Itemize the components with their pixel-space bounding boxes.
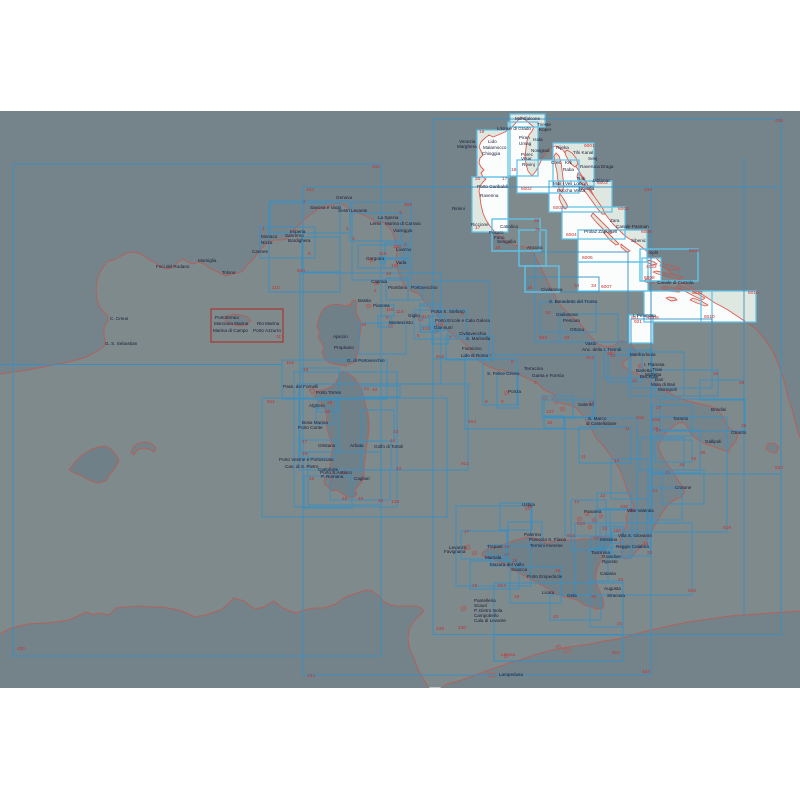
svg-text:49: 49 [303, 367, 309, 373]
svg-text:8: 8 [511, 359, 514, 365]
svg-text:434: 434 [306, 187, 314, 193]
svg-text:Portovecchio: Portovecchio [411, 285, 438, 290]
svg-text:40: 40 [361, 322, 367, 328]
svg-text:Crotone: Crotone [675, 485, 692, 490]
svg-text:Raveruca Draga: Raveruca Draga [580, 164, 614, 169]
svg-text:Montecristo: Montecristo [389, 320, 413, 325]
svg-text:Portoferraio: Portoferraio [215, 315, 239, 320]
svg-text:432: 432 [372, 164, 380, 170]
svg-text:Catania: Catania [600, 571, 616, 576]
svg-text:9: 9 [534, 380, 537, 386]
svg-text:6022: 6022 [692, 290, 703, 296]
svg-text:Messina: Messina [600, 537, 618, 542]
svg-text:Porto Vesme e Portoscuso: Porto Vesme e Portoscuso [279, 457, 334, 462]
svg-text:48: 48 [327, 400, 333, 406]
svg-text:12: 12 [610, 353, 616, 359]
svg-text:915: 915 [636, 415, 644, 421]
svg-text:910: 910 [297, 268, 305, 274]
svg-text:35: 35 [535, 227, 541, 233]
svg-text:Koper: Koper [539, 127, 552, 132]
svg-text:7: 7 [449, 335, 452, 341]
svg-text:Marghera: Marghera [457, 144, 477, 149]
svg-text:Marciana Marina: Marciana Marina [214, 321, 249, 326]
svg-text:46: 46 [309, 476, 315, 482]
svg-text:Otranto: Otranto [731, 430, 747, 435]
svg-text:19: 19 [511, 167, 517, 173]
svg-text:Oristano: Oristano [318, 443, 336, 448]
svg-text:Pesaro: Pesaro [489, 230, 504, 235]
svg-text:Lido di Roma: Lido di Roma [461, 353, 489, 358]
svg-text:43: 43 [396, 466, 402, 472]
svg-text:Capraia: Capraia [371, 279, 388, 284]
svg-text:110: 110 [272, 285, 280, 291]
svg-text:Giglio: Giglio [408, 313, 420, 318]
svg-text:915: 915 [567, 533, 575, 539]
svg-text:3: 3 [399, 210, 402, 216]
svg-text:Sciacca: Sciacca [511, 567, 528, 572]
svg-text:Porto Ercole e Cala Galera: Porto Ercole e Cala Galera [435, 318, 490, 323]
svg-text:43: 43 [393, 429, 399, 435]
svg-text:7: 7 [489, 353, 492, 359]
svg-text:6004: 6004 [566, 232, 577, 238]
svg-text:S. Marinella: S. Marinella [466, 336, 491, 341]
svg-text:Vada: Vada [396, 260, 407, 265]
svg-text:11: 11 [625, 426, 630, 432]
svg-text:I. Pelagosa: I. Pelagosa [633, 313, 656, 318]
svg-text:17: 17 [464, 529, 470, 535]
svg-text:Rijeka: Rijeka [556, 145, 569, 150]
svg-text:Salerno: Salerno [578, 402, 594, 407]
svg-text:20: 20 [553, 614, 559, 620]
svg-text:Porto Torres: Porto Torres [316, 390, 342, 395]
svg-text:17: 17 [504, 552, 510, 558]
svg-text:6005: 6005 [582, 255, 593, 261]
svg-text:Monaco: Monaco [261, 234, 278, 239]
svg-text:Ancona: Ancona [527, 245, 543, 250]
svg-text:Marina di Campo: Marina di Campo [213, 328, 248, 333]
svg-text:Termini Imerese: Termini Imerese [530, 543, 563, 548]
svg-text:di Castellabate: di Castellabate [586, 421, 617, 426]
svg-text:909: 909 [404, 202, 412, 208]
svg-text:Montfalcone: Montfalcone [515, 116, 540, 121]
svg-text:6001: 6001 [584, 143, 595, 149]
svg-text:S. Felice Circeo: S. Felice Circeo [487, 371, 520, 376]
svg-text:40: 40 [386, 271, 392, 277]
svg-text:Rovinj: Rovinj [522, 162, 535, 167]
svg-text:19: 19 [514, 594, 520, 600]
svg-text:Genova: Genova [336, 195, 353, 200]
svg-text:28: 28 [700, 450, 706, 456]
svg-text:Malamocco: Malamocco [483, 145, 507, 150]
svg-text:Porto Garibaldi: Porto Garibaldi [477, 184, 508, 189]
svg-text:33: 33 [564, 335, 570, 341]
svg-text:6010: 6010 [748, 290, 759, 296]
svg-text:Siracusa: Siracusa [607, 593, 625, 598]
svg-text:Lido: Lido [488, 139, 497, 144]
svg-text:Ajaccio: Ajaccio [333, 334, 348, 339]
svg-text:Trapani: Trapani [487, 544, 502, 549]
svg-text:Prolaz Zapuntell: Prolaz Zapuntell [584, 229, 617, 234]
svg-text:Vrsar: Vrsar [521, 156, 532, 161]
svg-text:6010: 6010 [704, 314, 715, 320]
svg-text:Mazara del Vallo: Mazara del Vallo [490, 562, 524, 567]
svg-text:Fano: Fano [494, 235, 505, 240]
svg-text:21: 21 [665, 470, 671, 476]
svg-text:6002: 6002 [521, 186, 532, 192]
svg-text:912: 912 [461, 461, 469, 467]
svg-text:919: 919 [723, 525, 731, 531]
svg-text:Zara: Zara [610, 218, 620, 223]
svg-text:47: 47 [302, 439, 308, 445]
svg-text:Terracina: Terracina [524, 366, 543, 371]
svg-text:Tihi Kanal: Tihi Kanal [573, 150, 593, 155]
svg-text:Savona e Vado: Savona e Vado [310, 205, 342, 210]
svg-text:Split: Split [649, 250, 659, 255]
svg-text:Gallipoli: Gallipoli [705, 439, 721, 444]
svg-text:Ustica: Ustica [522, 502, 535, 507]
svg-text:6004: 6004 [618, 206, 629, 212]
svg-text:Litorale di Grado: Litorale di Grado [497, 126, 531, 131]
svg-text:Giannutri: Giannutri [434, 325, 453, 330]
svg-text:436: 436 [775, 118, 783, 124]
svg-text:Sestri Levante: Sestri Levante [338, 208, 368, 213]
svg-text:40: 40 [325, 409, 331, 415]
svg-text:Isola: Isola [533, 137, 543, 142]
svg-text:23: 23 [602, 526, 608, 532]
svg-text:127: 127 [546, 409, 554, 415]
svg-text:Cattolica: Cattolica [500, 224, 518, 229]
svg-text:920: 920 [775, 465, 783, 471]
svg-text:14: 14 [574, 499, 580, 505]
svg-text:20: 20 [475, 176, 481, 182]
svg-text:230: 230 [458, 625, 466, 631]
svg-text:G. di Portovecchio: G. di Portovecchio [347, 358, 385, 363]
svg-text:Vibo Valentia: Vibo Valentia [627, 508, 654, 513]
svg-text:911: 911 [267, 399, 275, 405]
svg-text:18: 18 [479, 129, 485, 135]
svg-text:1: 1 [262, 226, 265, 232]
svg-text:S. Benedetto del Tronto: S. Benedetto del Tronto [549, 299, 598, 304]
svg-text:Linosa: Linosa [501, 652, 515, 658]
svg-text:Cala di Levante: Cala di Levante [474, 618, 506, 623]
svg-text:118: 118 [396, 309, 404, 315]
svg-text:18: 18 [472, 583, 478, 589]
svg-text:6005: 6005 [689, 248, 700, 254]
svg-text:913: 913 [436, 354, 444, 360]
svg-text:Anc. della I. Tremiti: Anc. della I. Tremiti [582, 347, 621, 352]
svg-text:917: 917 [498, 583, 506, 589]
svg-text:Bordighera: Bordighera [288, 238, 311, 243]
svg-text:8: 8 [485, 399, 488, 405]
svg-text:Nizza: Nizza [261, 240, 273, 245]
svg-text:Arbata: Arbata [350, 443, 364, 448]
svg-text:Canale di Curzola: Canale di Curzola [657, 280, 694, 285]
svg-text:36: 36 [495, 245, 501, 251]
svg-text:Licata: Licata [542, 590, 555, 595]
svg-text:Porta S. Stefano: Porta S. Stefano [431, 309, 465, 314]
svg-text:Gela: Gela [567, 593, 577, 598]
svg-text:Cagliari: Cagliari [354, 476, 370, 481]
svg-text:P. Romana: P. Romana [321, 474, 344, 479]
svg-text:2: 2 [346, 226, 349, 232]
svg-text:Fiumicino: Fiumicino [462, 346, 482, 351]
svg-text:33: 33 [618, 577, 624, 583]
svg-text:6006: 6006 [641, 229, 652, 235]
svg-text:17: 17 [502, 176, 508, 182]
svg-text:Senj: Senj [588, 156, 597, 161]
svg-text:Pomezia S. Flavia: Pomezia S. Flavia [529, 537, 566, 542]
svg-text:Golfo di Tortoli: Golfo di Tortoli [374, 444, 403, 449]
svg-text:9: 9 [501, 399, 504, 405]
svg-text:2: 2 [303, 199, 306, 205]
svg-text:919: 919 [652, 417, 660, 423]
svg-text:Riposto: Riposto [602, 559, 618, 564]
svg-text:Favignana: Favignana [444, 549, 466, 554]
svg-text:13: 13 [600, 493, 606, 499]
svg-text:Umag: Umag [519, 141, 532, 146]
svg-text:Ortona: Ortona [570, 327, 584, 332]
svg-text:Monopoli: Monopoli [658, 387, 677, 392]
svg-text:36: 36 [534, 218, 540, 224]
svg-text:14: 14 [652, 488, 658, 494]
svg-text:4: 4 [374, 288, 377, 294]
svg-text:Propriano: Propriano [334, 345, 354, 350]
svg-text:11: 11 [581, 454, 586, 460]
svg-text:Piran: Piran [519, 135, 530, 140]
svg-text:Reggio Calabria: Reggio Calabria [616, 544, 649, 549]
svg-text:21: 21 [617, 621, 623, 627]
svg-text:434: 434 [642, 669, 650, 675]
svg-text:Brindisi: Brindisi [711, 407, 726, 412]
svg-text:Gorgona: Gorgona [366, 256, 384, 261]
svg-text:Livorno: Livorno [396, 247, 412, 252]
svg-text:22: 22 [594, 536, 600, 542]
svg-text:Pescara: Pescara [563, 318, 580, 323]
svg-text:Jablanac: Jablanac [592, 178, 611, 183]
svg-text:Panarea: Panarea [584, 509, 602, 514]
svg-text:Cres: Cres [551, 160, 561, 165]
svg-text:6003: 6003 [553, 205, 564, 211]
svg-text:Sibenic: Sibenic [631, 238, 647, 243]
svg-text:918: 918 [688, 588, 696, 594]
svg-text:6: 6 [417, 333, 420, 339]
svg-text:Rimini: Rimini [452, 206, 465, 211]
svg-text:23: 23 [647, 550, 653, 556]
svg-text:29: 29 [739, 380, 745, 386]
svg-text:Ponza: Ponza [508, 389, 521, 394]
svg-text:Chioggia: Chioggia [482, 151, 501, 156]
svg-text:46: 46 [358, 496, 364, 502]
svg-text:28: 28 [741, 423, 747, 429]
svg-text:La Spezia: La Spezia [378, 215, 399, 220]
svg-text:Foci del Rodano: Foci del Rodano [156, 264, 190, 269]
svg-text:Pass. dei Fornelli: Pass. dei Fornelli [283, 384, 318, 389]
svg-text:20: 20 [591, 594, 597, 600]
svg-text:Krk: Krk [565, 160, 573, 165]
svg-text:Civitanova: Civitanova [541, 287, 563, 292]
svg-text:5: 5 [308, 251, 311, 257]
svg-text:129: 129 [391, 499, 399, 505]
svg-text:914: 914 [586, 355, 594, 361]
svg-text:I. Pianosa: I. Pianosa [644, 362, 665, 367]
svg-text:Canale Pasman: Canale Pasman [616, 224, 649, 229]
svg-text:Novigrad: Novigrad [531, 148, 550, 153]
svg-text:27: 27 [656, 405, 662, 411]
svg-text:917: 917 [612, 650, 620, 656]
svg-text:Giulianova: Giulianova [556, 312, 578, 317]
svg-text:432: 432 [17, 646, 25, 652]
svg-text:3: 3 [352, 236, 355, 242]
svg-text:G. S. Sebastian: G. S. Sebastian [105, 341, 138, 346]
svg-text:42: 42 [372, 387, 378, 393]
svg-text:Porto Empedocle: Porto Empedocle [527, 574, 563, 579]
svg-text:434: 434 [644, 187, 652, 193]
svg-text:Alghero: Alghero [309, 403, 325, 408]
svg-text:Viareggio: Viareggio [393, 228, 413, 233]
svg-text:25: 25 [691, 456, 697, 462]
svg-text:Taranto: Taranto [673, 416, 689, 421]
svg-text:Augusta: Augusta [604, 586, 621, 591]
svg-text:Porto Azzurro: Porto Azzurro [253, 328, 281, 333]
svg-text:16: 16 [679, 462, 685, 468]
svg-text:Riccione: Riccione [471, 222, 489, 227]
svg-text:435: 435 [436, 626, 444, 632]
svg-text:30: 30 [713, 371, 719, 377]
svg-text:117: 117 [276, 334, 284, 340]
svg-text:Marina di Carrara: Marina di Carrara [385, 221, 421, 226]
svg-text:Gaeta e Formia: Gaeta e Formia [532, 373, 564, 378]
svg-text:Manfredonia: Manfredonia [630, 352, 656, 357]
svg-text:Lampedusa: Lampedusa [499, 672, 523, 677]
svg-text:16: 16 [504, 544, 510, 550]
svg-text:Piombino: Piombino [388, 285, 408, 290]
svg-text:12: 12 [614, 458, 620, 464]
svg-text:10: 10 [547, 420, 553, 426]
svg-text:31: 31 [632, 378, 638, 384]
svg-text:914: 914 [468, 419, 476, 425]
svg-text:Bastia: Bastia [358, 298, 371, 303]
svg-text:Boccha Vesta: Boccha Vesta [557, 188, 586, 193]
svg-text:Porto Conte: Porto Conte [298, 425, 323, 430]
svg-text:Villa S. Giovanni: Villa S. Giovanni [618, 533, 652, 538]
svg-text:Rio Marina: Rio Marina [257, 321, 280, 326]
svg-text:6007: 6007 [601, 284, 612, 290]
svg-text:Ravenna: Ravenna [480, 193, 499, 198]
svg-text:Raba: Raba [563, 167, 574, 172]
svg-text:Pianosa: Pianosa [373, 303, 390, 308]
svg-text:C. Creus: C. Creus [110, 316, 129, 321]
svg-text:Cannes: Cannes [252, 249, 269, 254]
svg-text:Marsala: Marsala [485, 555, 502, 560]
svg-text:41: 41 [364, 386, 370, 392]
svg-text:4022: 4022 [646, 264, 657, 270]
svg-text:119: 119 [286, 360, 294, 366]
svg-text:922: 922 [539, 335, 547, 341]
svg-text:45: 45 [378, 498, 384, 504]
svg-text:Marsiglia: Marsiglia [198, 258, 217, 263]
svg-text:34: 34 [591, 283, 597, 289]
svg-text:6008: 6008 [644, 275, 655, 281]
svg-text:Tolone: Tolone [222, 270, 236, 275]
svg-text:Can. di S. Pietro: Can. di S. Pietro [285, 464, 319, 469]
svg-text:Vasto: Vasto [585, 341, 597, 346]
svg-text:34: 34 [545, 310, 551, 316]
svg-text:Lerici: Lerici [370, 221, 381, 226]
svg-text:26: 26 [653, 426, 659, 432]
svg-text:15: 15 [527, 285, 533, 291]
svg-text:918: 918 [577, 521, 585, 527]
svg-text:34: 34 [574, 283, 580, 289]
svg-text:45: 45 [342, 496, 348, 502]
svg-text:434: 434 [307, 673, 315, 679]
svg-text:122: 122 [422, 326, 430, 332]
svg-text:117: 117 [422, 314, 430, 320]
